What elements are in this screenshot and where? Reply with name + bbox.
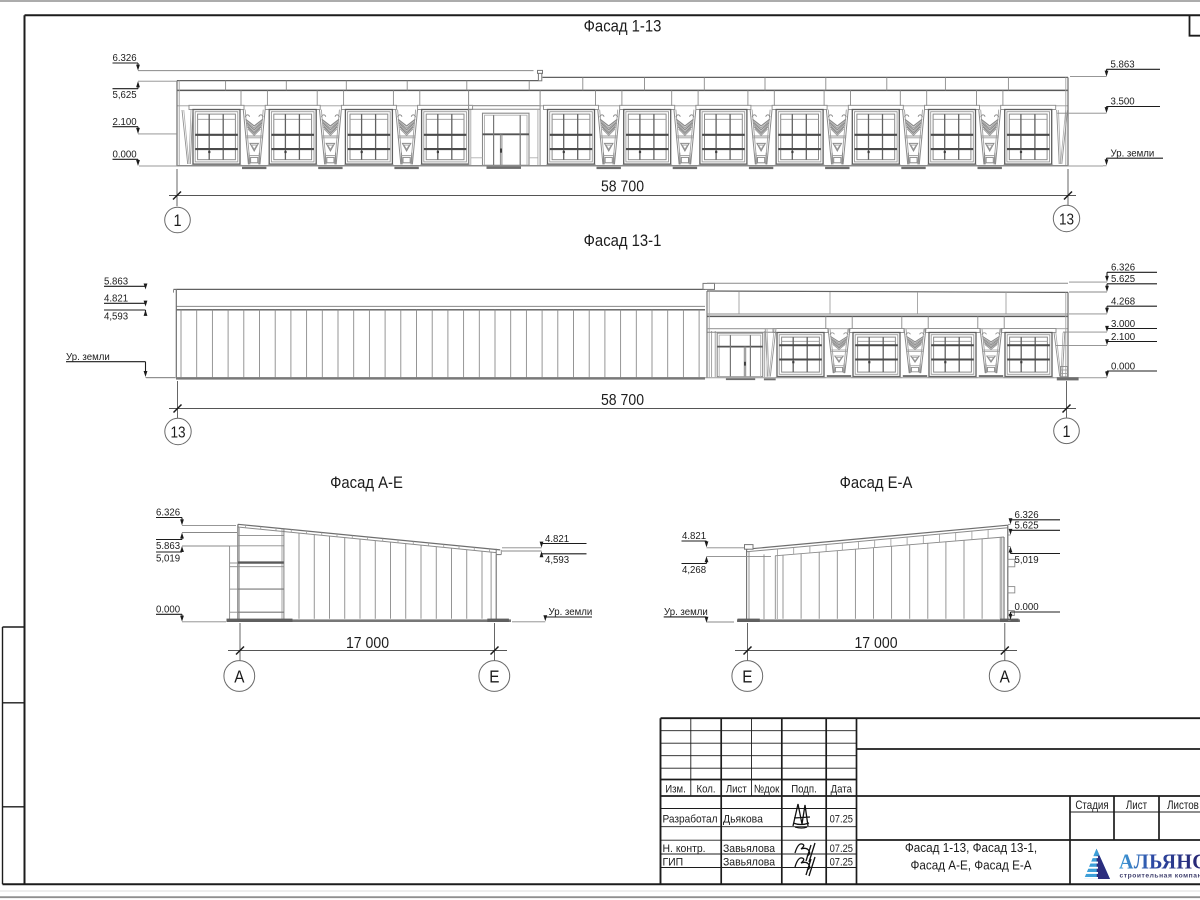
svg-text:4.821: 4.821 bbox=[682, 531, 707, 542]
svg-text:Листов: Листов bbox=[1167, 799, 1199, 812]
svg-text:Лист: Лист bbox=[726, 784, 747, 796]
svg-text:58 700: 58 700 bbox=[601, 178, 644, 196]
svg-text:Ур. земли: Ур. земли bbox=[1111, 148, 1155, 159]
svg-text:0.000: 0.000 bbox=[1111, 361, 1136, 372]
svg-text:1: 1 bbox=[1062, 423, 1070, 441]
svg-text:5.863: 5.863 bbox=[156, 541, 181, 552]
svg-text:Завьялова: Завьялова bbox=[723, 856, 775, 868]
svg-text:ГИП: ГИП bbox=[663, 856, 684, 868]
svg-text:Фасад А-Е: Фасад А-Е bbox=[330, 474, 403, 492]
svg-text:0.000: 0.000 bbox=[156, 604, 181, 615]
svg-text:3.500: 3.500 bbox=[1111, 96, 1136, 107]
svg-text:5.863: 5.863 bbox=[104, 276, 129, 287]
svg-text:5,019: 5,019 bbox=[1015, 555, 1040, 566]
svg-text:Лист: Лист bbox=[1126, 799, 1147, 812]
svg-text:Кол.: Кол. bbox=[697, 784, 716, 796]
svg-text:5.625: 5.625 bbox=[1111, 274, 1136, 285]
svg-text:Завьялова: Завьялова bbox=[723, 843, 775, 855]
svg-text:4.821: 4.821 bbox=[104, 293, 129, 304]
svg-text:5.625: 5.625 bbox=[1015, 520, 1040, 531]
svg-text:17 000: 17 000 bbox=[854, 634, 897, 652]
svg-text:4.268: 4.268 bbox=[1111, 296, 1136, 307]
svg-text:17 000: 17 000 bbox=[346, 634, 389, 652]
svg-text:4.821: 4.821 bbox=[545, 533, 570, 544]
svg-text:4,593: 4,593 bbox=[545, 555, 570, 566]
svg-text:07.25: 07.25 bbox=[830, 843, 854, 855]
svg-text:А: А bbox=[1000, 666, 1011, 686]
svg-text:строительная компания: строительная компания bbox=[1120, 873, 1200, 880]
svg-text:3.000: 3.000 bbox=[1111, 319, 1136, 330]
svg-text:Ур. земли: Ур. земли bbox=[66, 352, 110, 363]
svg-text:Фасад 1-13, Фасад 13-1,: Фасад 1-13, Фасад 13-1, bbox=[905, 840, 1037, 855]
svg-text:1: 1 bbox=[173, 212, 181, 230]
svg-text:Ур. земли: Ур. земли bbox=[549, 607, 593, 618]
svg-text:2.100: 2.100 bbox=[1111, 332, 1136, 343]
svg-text:Фасад Е-А: Фасад Е-А bbox=[840, 474, 913, 492]
svg-text:А: А bbox=[234, 666, 245, 686]
svg-text:Фасад А-Е, Фасад Е-А: Фасад А-Е, Фасад Е-А bbox=[910, 858, 1032, 873]
svg-text:Фасад 1-13: Фасад 1-13 bbox=[584, 18, 662, 36]
svg-text:13: 13 bbox=[1059, 211, 1074, 228]
svg-text:6.326: 6.326 bbox=[1111, 262, 1136, 273]
svg-text:0.000: 0.000 bbox=[1015, 602, 1040, 613]
svg-text:6.326: 6.326 bbox=[156, 507, 181, 518]
svg-text:2.100: 2.100 bbox=[113, 117, 138, 128]
svg-text:Изм.: Изм. bbox=[665, 784, 686, 796]
svg-text:Ур. земли: Ур. земли bbox=[664, 607, 708, 618]
svg-text:№док: №док bbox=[754, 784, 780, 796]
svg-text:58 700: 58 700 bbox=[601, 391, 644, 409]
svg-text:0.000: 0.000 bbox=[113, 149, 138, 160]
svg-text:АЛЬЯНС: АЛЬЯНС bbox=[1119, 851, 1200, 874]
svg-text:5,019: 5,019 bbox=[156, 553, 181, 564]
svg-text:4,593: 4,593 bbox=[104, 311, 129, 322]
svg-text:5.863: 5.863 bbox=[1111, 59, 1136, 70]
svg-text:Стадия: Стадия bbox=[1075, 799, 1108, 812]
svg-text:07.25: 07.25 bbox=[830, 814, 854, 826]
svg-text:07.25: 07.25 bbox=[830, 857, 854, 869]
svg-text:13: 13 bbox=[170, 424, 185, 441]
svg-text:Фасад 13-1: Фасад 13-1 bbox=[584, 232, 662, 250]
svg-text:5,625: 5,625 bbox=[113, 90, 138, 101]
svg-text:6.326: 6.326 bbox=[113, 53, 138, 64]
svg-text:Н. контр.: Н. контр. bbox=[663, 843, 706, 855]
svg-text:Е: Е bbox=[489, 666, 499, 686]
svg-text:Дьякова: Дьякова bbox=[723, 813, 763, 825]
svg-text:Подп.: Подп. bbox=[791, 784, 816, 796]
svg-text:Дата: Дата bbox=[831, 784, 852, 796]
svg-text:Разработал: Разработал bbox=[663, 813, 718, 825]
svg-text:4,268: 4,268 bbox=[682, 565, 707, 576]
svg-text:Е: Е bbox=[742, 666, 752, 686]
